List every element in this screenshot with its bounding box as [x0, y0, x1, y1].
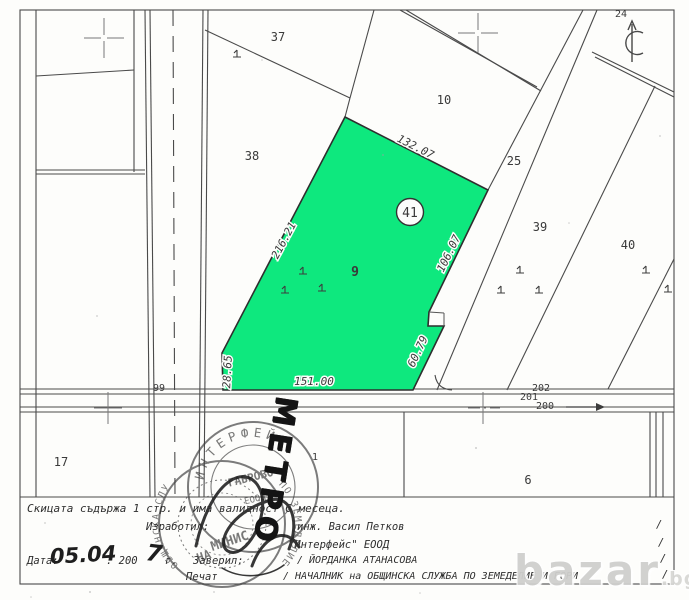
footer-company-name: "Интерфейс" ЕООД [288, 539, 389, 551]
parcel-41-number: 41 [402, 206, 418, 221]
footer-stamp-label: Печат [186, 571, 218, 583]
handwritten-date: 05.04 [49, 541, 117, 568]
parcel-label-10: 10 [437, 93, 451, 107]
parcel-label-38: 38 [245, 149, 259, 163]
parcel-label-24: 24 [615, 9, 627, 20]
parcel-label-6: 6 [524, 473, 531, 487]
watermark-text: bazar [514, 546, 661, 595]
road-label-25: 25 [507, 154, 521, 168]
dimension-label: 28.65 [220, 355, 235, 389]
parcel-label-40: 40 [621, 238, 635, 252]
footer-date-suffix: г. [165, 555, 178, 567]
footer-validity-line: Скицата съдържа 1 стр. и има валидност 6… [27, 502, 345, 515]
footer-made-by-name: инж. Васил Петков [297, 521, 404, 533]
signature-slash: / [656, 519, 662, 531]
cadastral-sketch-scan: 132.07 216.21 106.07 60.79 151.00 28.65 … [0, 0, 689, 600]
parcel-label-17: 17 [54, 455, 68, 469]
footer-made-by-label: Изработил: [146, 521, 209, 533]
watermark: bazar.bg [514, 546, 689, 595]
parcel-label-39: 39 [533, 220, 547, 234]
dimension-label: 151.00 [294, 375, 334, 388]
handwritten-year-digit: 7 [144, 540, 163, 568]
footer-certified-label: Заверил: [193, 555, 244, 567]
footer-certified-by: / ЙОРДАНКА АТАНАСОВА [297, 555, 417, 566]
road-label-200: 200 [536, 401, 554, 412]
watermark-tld: .bg [661, 568, 689, 590]
parcel-41-class-label: 9 [351, 265, 359, 280]
parcel-label-37: 37 [271, 30, 285, 44]
road-label-99: 99 [153, 383, 165, 394]
